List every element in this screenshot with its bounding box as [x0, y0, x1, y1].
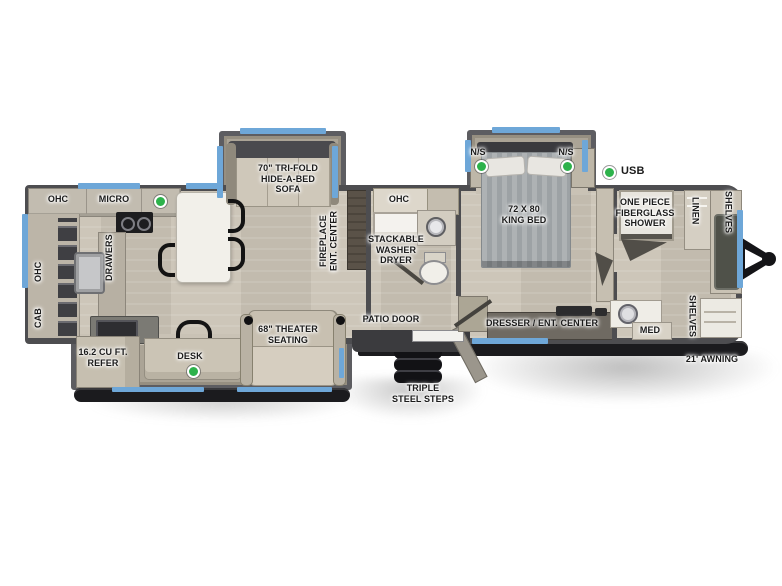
window	[582, 140, 588, 172]
label-cab: CAB	[33, 298, 44, 338]
window	[492, 127, 560, 133]
awning-rail-strip	[237, 387, 332, 392]
label-washer: STACKABLE WASHER DRYER	[360, 234, 432, 266]
patio-door	[412, 330, 464, 342]
window	[240, 128, 326, 134]
label-refer: 16.2 CU FT. REFER	[68, 347, 138, 368]
label-linen: LINEN	[690, 186, 701, 236]
sofa-back	[228, 141, 336, 158]
hitch-coupler	[762, 252, 776, 266]
front-bath-sink-icon	[618, 304, 638, 324]
label-micro: MICRO	[89, 194, 139, 205]
usb-indicator-dot	[561, 160, 574, 173]
label-shelves-top: SHELVES	[723, 186, 734, 238]
label-awning: 21' AWNING	[672, 354, 752, 365]
theater-seating-seat	[248, 346, 338, 386]
label-med: MED	[630, 325, 670, 336]
window	[78, 183, 140, 189]
label-patio-door: PATIO DOOR	[351, 314, 431, 325]
label-ns-right: N/S	[551, 147, 581, 158]
label-ns-left: N/S	[463, 147, 493, 158]
shelf-line	[704, 311, 736, 313]
dining-chair	[228, 199, 245, 233]
shelf-line	[704, 321, 736, 323]
dining-table	[176, 192, 231, 283]
label-shower: ONE PIECE FIBERGLASS SHOWER	[612, 197, 678, 229]
cooktop-burner	[121, 217, 135, 231]
usb-legend-dot	[603, 166, 616, 179]
window	[472, 338, 548, 344]
window	[737, 210, 743, 288]
label-drawers: DRAWERS	[104, 226, 115, 290]
sofa-arm	[226, 143, 236, 205]
label-shelves-bottom: SHELVES	[687, 290, 698, 342]
dining-chair	[158, 243, 175, 277]
floorplan-canvas: OHC MICRO OHC CAB DRAWERS 16.2 CU FT. RE…	[0, 0, 782, 586]
usb-indicator-dot	[154, 195, 167, 208]
label-ohc-top: OHC	[38, 194, 78, 205]
dresser-item	[556, 306, 592, 316]
label-sofa: 70" TRI-FOLD HIDE-A-BED SOFA	[242, 163, 334, 195]
label-desk: DESK	[165, 351, 215, 362]
cupholder-icon	[336, 316, 345, 325]
cabinet-divider	[141, 189, 142, 214]
label-king-bed: 72 X 80 KING BED	[494, 204, 554, 225]
label-usb: USB	[621, 165, 665, 178]
window	[186, 183, 218, 189]
label-bath-ohc: OHC	[379, 194, 419, 205]
window	[217, 146, 223, 198]
label-theater: 68" THEATER SEATING	[248, 324, 328, 345]
step-icon	[394, 370, 442, 383]
label-ohc-side: OHC	[33, 252, 44, 292]
kitchen-sink-icon	[74, 252, 105, 294]
window	[339, 348, 344, 378]
cooktop-burner	[137, 217, 151, 231]
label-steps: TRIPLE STEEL STEPS	[378, 383, 468, 404]
dining-chair	[228, 237, 245, 271]
dresser-item	[595, 308, 607, 316]
usb-indicator-dot	[187, 365, 200, 378]
usb-indicator-dot	[475, 160, 488, 173]
shelves-bottom-cabinet	[700, 298, 742, 338]
awning-rail-strip	[112, 387, 204, 392]
cabinet-divider	[86, 189, 87, 214]
label-dresser: DRESSER / ENT. CENTER	[466, 318, 618, 329]
pillow	[484, 156, 525, 178]
desk-chair	[176, 320, 212, 338]
label-fireplace: FIREPLACE ENT. CENTER	[318, 200, 339, 282]
window	[22, 214, 28, 288]
